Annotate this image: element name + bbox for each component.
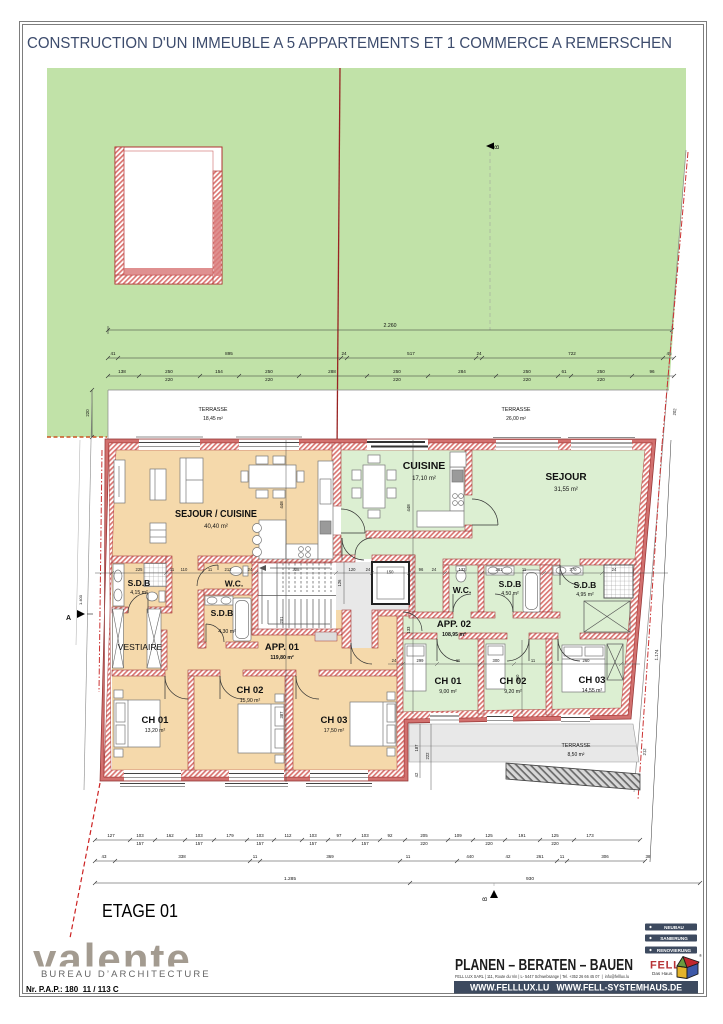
svg-text:120: 120: [349, 567, 357, 572]
svg-text:157: 157: [256, 841, 264, 846]
svg-text:162: 162: [166, 833, 174, 838]
svg-text:119,80 m²: 119,80 m²: [270, 655, 294, 661]
svg-text:225: 225: [136, 567, 144, 572]
svg-text:43: 43: [102, 854, 107, 859]
svg-text:220: 220: [420, 841, 428, 846]
svg-text:24: 24: [612, 567, 617, 572]
svg-text:Nr. P.A.P.: 180 11 / 113 C: Nr. P.A.P.: 180 11 / 113 C: [26, 985, 119, 994]
svg-text:CH 03: CH 03: [321, 715, 348, 726]
svg-text:112: 112: [285, 833, 293, 838]
svg-text:132: 132: [459, 567, 467, 572]
svg-text:306: 306: [601, 854, 609, 859]
svg-text:202: 202: [672, 408, 678, 416]
svg-text:103: 103: [195, 833, 203, 838]
svg-text:TERRASSE: TERRASSE: [501, 407, 530, 413]
svg-text:448: 448: [406, 504, 411, 512]
svg-text:220: 220: [523, 377, 531, 382]
svg-text:FELL LUX SARL | 111, Route du: FELL LUX SARL | 111, Route du Vin | L- 5…: [455, 974, 630, 979]
svg-text:220: 220: [597, 377, 605, 382]
svg-text:150: 150: [387, 570, 395, 575]
svg-text:220: 220: [393, 377, 401, 382]
svg-text:CH 01: CH 01: [435, 676, 463, 687]
svg-text:S.D.B: S.D.B: [211, 608, 234, 618]
svg-text:TERRASSE: TERRASSE: [198, 407, 227, 413]
svg-text:9,20 m²: 9,20 m²: [504, 689, 522, 695]
svg-text:125: 125: [485, 833, 493, 838]
svg-text:261: 261: [496, 567, 504, 572]
svg-text:187: 187: [414, 744, 419, 752]
svg-text:11: 11: [522, 567, 527, 572]
svg-text:11: 11: [253, 854, 258, 859]
svg-text:125: 125: [551, 833, 559, 838]
svg-text:103: 103: [309, 833, 317, 838]
svg-text:517: 517: [407, 351, 415, 356]
svg-text:205: 205: [420, 833, 428, 838]
svg-text:CH 01: CH 01: [142, 715, 170, 726]
svg-text:42: 42: [414, 772, 419, 777]
svg-text:328: 328: [293, 567, 301, 572]
svg-text:CH 03: CH 03: [579, 675, 606, 686]
svg-text:CUISINE: CUISINE: [403, 460, 446, 472]
svg-text:126: 126: [337, 579, 342, 587]
svg-text:11: 11: [560, 854, 565, 859]
svg-text:157: 157: [309, 841, 317, 846]
svg-text:B: B: [495, 145, 501, 149]
svg-text:S.D.B: S.D.B: [128, 578, 151, 588]
svg-text:S.D.B: S.D.B: [499, 579, 522, 589]
svg-text:W.C.: W.C.: [453, 585, 471, 595]
svg-text:11: 11: [208, 567, 213, 572]
svg-text:360: 360: [515, 674, 520, 682]
svg-text:220: 220: [551, 841, 559, 846]
svg-text:SEJOUR / CUISINE: SEJOUR / CUISINE: [175, 509, 257, 520]
svg-text:4,30 m²: 4,30 m²: [218, 629, 236, 635]
svg-text:387: 387: [279, 711, 284, 719]
svg-text:VESTIAIRE: VESTIAIRE: [118, 642, 163, 652]
svg-text:APP. 01: APP. 01: [265, 642, 300, 653]
svg-text:38: 38: [646, 854, 651, 859]
svg-text:96: 96: [649, 369, 655, 374]
svg-text:40,40 m²: 40,40 m²: [204, 524, 228, 530]
svg-text:138: 138: [118, 369, 126, 374]
svg-text:31,55 m²: 31,55 m²: [554, 487, 578, 493]
svg-text:173: 173: [586, 833, 594, 838]
svg-text:24: 24: [392, 658, 397, 663]
svg-text:369: 369: [326, 854, 334, 859]
svg-text:109: 109: [454, 833, 462, 838]
svg-text:300: 300: [493, 658, 501, 663]
svg-text:157: 157: [195, 841, 203, 846]
svg-text:24: 24: [248, 567, 253, 572]
svg-text:24: 24: [366, 567, 371, 572]
svg-text:W.C.: W.C.: [225, 579, 243, 589]
svg-text:103: 103: [256, 833, 264, 838]
svg-text:157: 157: [361, 841, 369, 846]
svg-text:260: 260: [583, 658, 591, 663]
svg-text:11: 11: [456, 658, 461, 663]
svg-text:103: 103: [361, 833, 369, 838]
svg-text:250: 250: [597, 369, 605, 374]
svg-text:1.400: 1.400: [78, 594, 83, 605]
svg-text:NEUBAU: NEUBAU: [664, 925, 684, 930]
svg-text:250: 250: [523, 369, 531, 374]
svg-text:157: 157: [136, 841, 144, 846]
svg-text:299: 299: [417, 658, 425, 663]
svg-text:11: 11: [531, 658, 536, 663]
svg-text:154: 154: [215, 369, 223, 374]
svg-text:930: 930: [526, 876, 534, 882]
svg-text:250: 250: [393, 369, 401, 374]
svg-text:A: A: [66, 615, 71, 622]
svg-text:9,00 m²: 9,00 m²: [439, 689, 457, 695]
svg-text:220: 220: [265, 377, 273, 382]
svg-text:18,45 m²: 18,45 m²: [203, 416, 223, 422]
svg-text:261: 261: [536, 854, 544, 859]
svg-text:448: 448: [279, 501, 284, 509]
svg-text:92: 92: [388, 833, 393, 838]
svg-text:RENOVIERUNG: RENOVIERUNG: [657, 948, 692, 953]
svg-text:201: 201: [279, 616, 284, 624]
svg-text:Das Haus.: Das Haus.: [652, 971, 673, 976]
svg-text:14,55 m²: 14,55 m²: [582, 688, 603, 694]
svg-text:97: 97: [337, 833, 342, 838]
svg-text:2.260: 2.260: [384, 323, 397, 329]
svg-text:61: 61: [561, 369, 567, 374]
svg-text:CH 02: CH 02: [500, 676, 527, 687]
svg-text:SEJOUR: SEJOUR: [545, 472, 587, 483]
svg-text:288: 288: [328, 369, 336, 374]
svg-text:250: 250: [165, 369, 173, 374]
svg-text:220: 220: [165, 377, 173, 382]
svg-text:4,50 m²: 4,50 m²: [501, 591, 519, 597]
svg-text:220: 220: [85, 409, 90, 417]
svg-text:212: 212: [642, 748, 647, 756]
svg-text:11: 11: [170, 567, 175, 572]
svg-text:212: 212: [225, 567, 233, 572]
svg-text:103: 103: [136, 833, 144, 838]
svg-text:S.D.B: S.D.B: [574, 580, 597, 590]
svg-text:41: 41: [110, 351, 116, 356]
svg-text:4,95 m²: 4,95 m²: [576, 592, 594, 598]
svg-text:CH 02: CH 02: [237, 685, 264, 696]
svg-text:250: 250: [265, 369, 273, 374]
svg-text:TERRASSE: TERRASSE: [561, 743, 590, 749]
svg-text:338: 338: [178, 854, 186, 859]
svg-text:CONSTRUCTION D'UN IMMEUBLE A 5: CONSTRUCTION D'UN IMMEUBLE A 5 APPARTEME…: [27, 35, 672, 52]
svg-text:24: 24: [476, 351, 482, 356]
svg-text:284: 284: [458, 369, 466, 374]
svg-text:96: 96: [419, 567, 424, 572]
svg-text:15,90 m²: 15,90 m²: [240, 698, 261, 704]
svg-text:191: 191: [518, 833, 526, 838]
svg-text:179: 179: [226, 833, 234, 838]
svg-text:ETAGE 01: ETAGE 01: [102, 900, 178, 921]
svg-text:222: 222: [425, 752, 430, 760]
svg-text:13,20 m²: 13,20 m²: [145, 728, 166, 734]
svg-text:1.174: 1.174: [654, 649, 660, 661]
svg-text:®: ®: [699, 953, 702, 958]
svg-text:4,15 m²: 4,15 m²: [130, 590, 148, 596]
svg-text:17,50 m²: 17,50 m²: [324, 728, 345, 734]
svg-text:24: 24: [432, 567, 437, 572]
svg-text:220: 220: [485, 841, 493, 846]
svg-text:1.285: 1.285: [284, 876, 296, 882]
svg-text:SANIERUNG: SANIERUNG: [660, 936, 688, 941]
svg-text:42: 42: [506, 854, 511, 859]
svg-text:370: 370: [570, 567, 578, 572]
svg-text:B: B: [483, 897, 489, 901]
svg-text:722: 722: [568, 351, 576, 356]
svg-text:PLANEN – BERATEN – BAUEN: PLANEN – BERATEN – BAUEN: [455, 957, 633, 974]
svg-text:11: 11: [406, 854, 411, 859]
svg-text:440: 440: [466, 854, 474, 859]
svg-text:FELL: FELL: [650, 960, 681, 972]
svg-text:110: 110: [181, 567, 188, 572]
svg-text:26,00 m²: 26,00 m²: [506, 416, 526, 422]
svg-text:17,10 m²: 17,10 m²: [412, 476, 436, 482]
svg-text:127: 127: [107, 833, 115, 838]
svg-text:133: 133: [406, 626, 411, 634]
svg-text:45: 45: [666, 351, 672, 356]
svg-text:895: 895: [225, 351, 233, 356]
svg-text:24: 24: [341, 351, 347, 356]
svg-text:108,95 m²: 108,95 m²: [442, 632, 466, 638]
svg-text:APP. 02: APP. 02: [437, 619, 471, 630]
svg-text:WWW.FELLLUX.LU WWW.FELL-SYST: WWW.FELLLUX.LU WWW.FELL-SYSTEMHAUS.DE: [470, 983, 682, 994]
svg-text:8,50 m²: 8,50 m²: [568, 752, 585, 758]
svg-text:BUREAU D’ARCHITECTURE: BUREAU D’ARCHITECTURE: [41, 969, 211, 980]
